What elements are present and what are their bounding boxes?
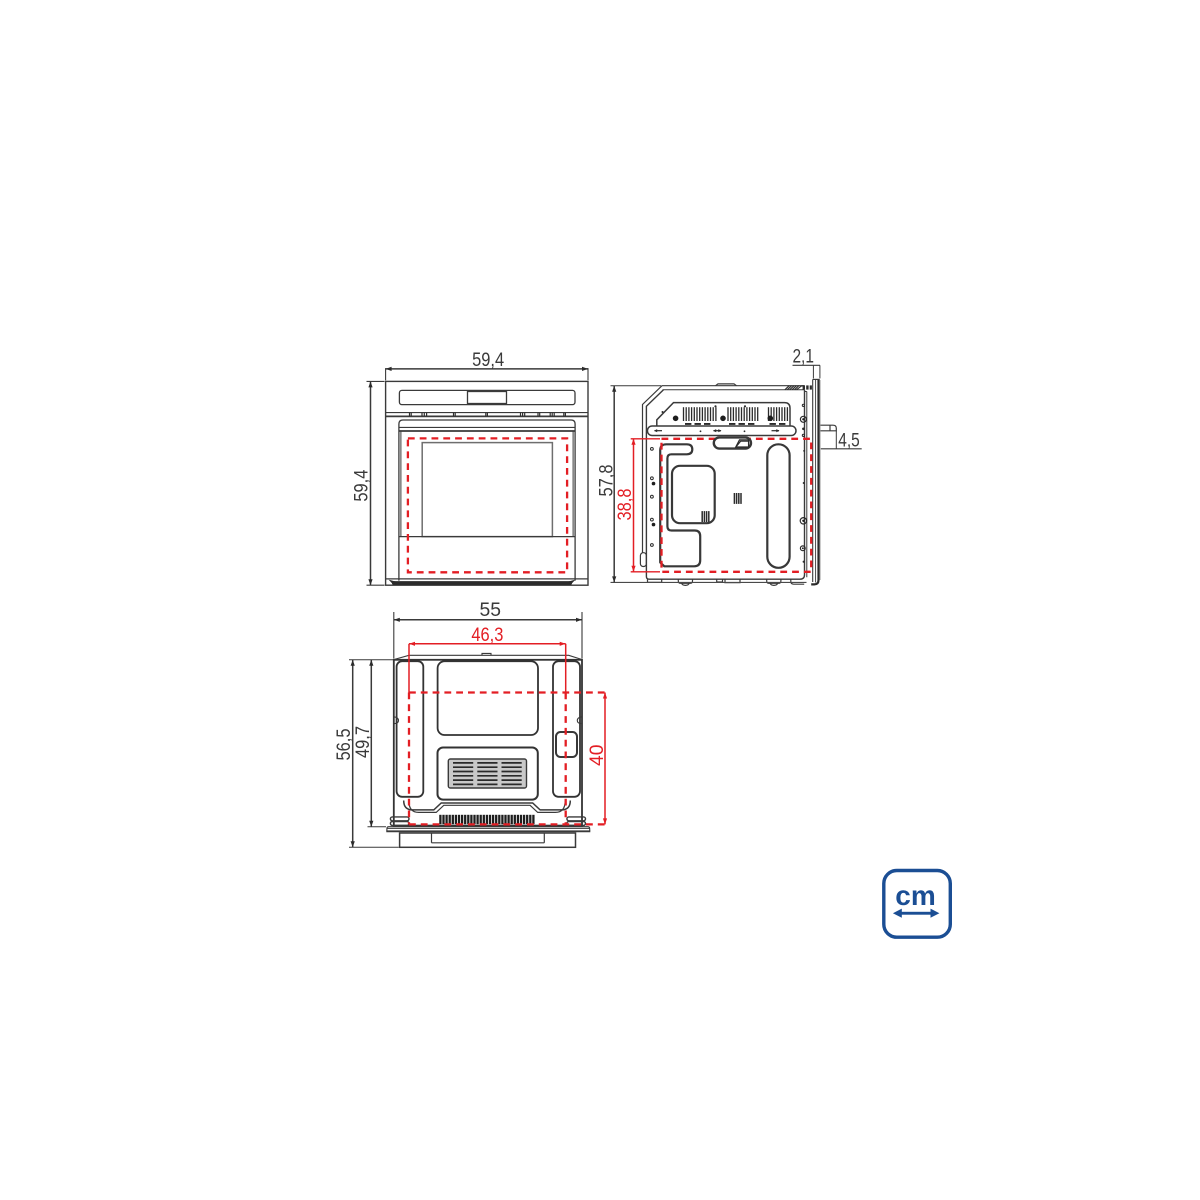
- svg-text:4,5: 4,5: [838, 430, 860, 451]
- svg-text:2,1: 2,1: [792, 346, 814, 367]
- svg-text:59,4: 59,4: [351, 469, 372, 501]
- svg-text:59,4: 59,4: [472, 350, 504, 371]
- svg-text:57,8: 57,8: [597, 465, 618, 497]
- svg-text:55: 55: [480, 600, 502, 621]
- svg-text:40: 40: [587, 745, 608, 767]
- svg-text:cm: cm: [895, 880, 935, 911]
- svg-text:49,7: 49,7: [353, 726, 374, 758]
- svg-text:46,3: 46,3: [471, 625, 503, 646]
- svg-text:38,8: 38,8: [615, 489, 636, 521]
